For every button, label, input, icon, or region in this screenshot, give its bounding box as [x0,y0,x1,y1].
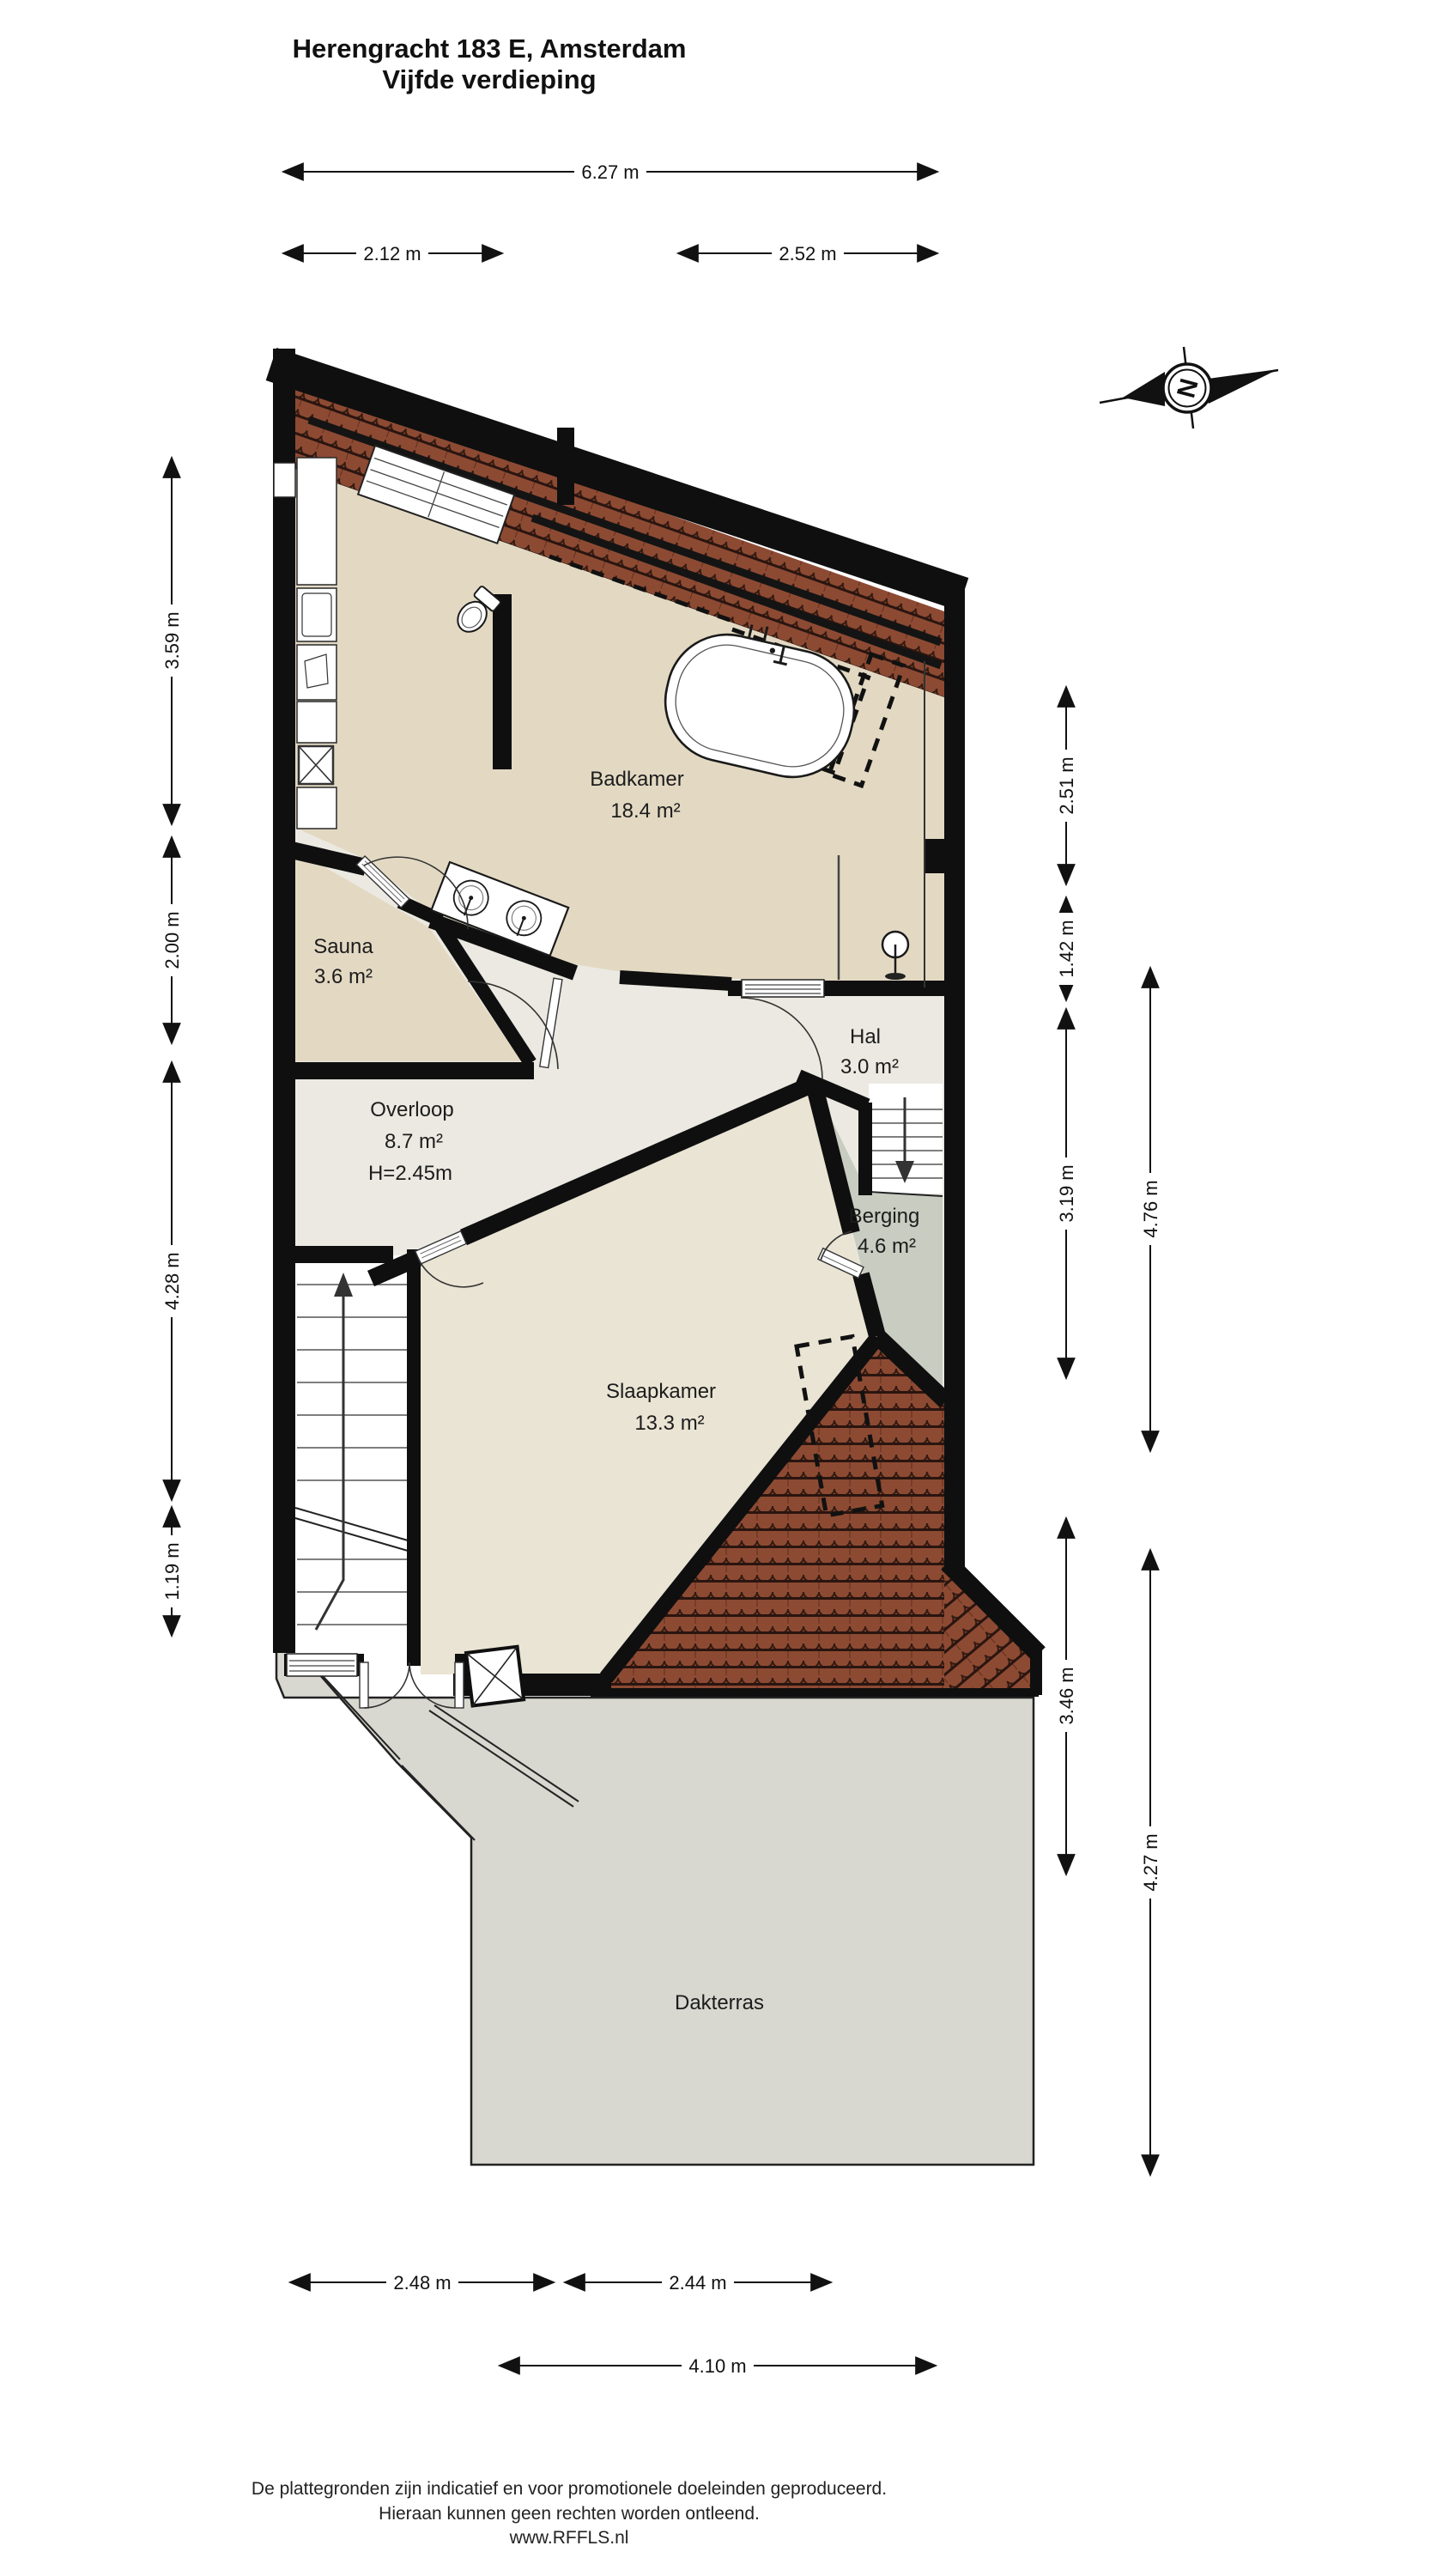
footer-line-2: Hieraan kunnen geen rechten worden ontle… [379,2504,760,2524]
page-subtitle: Vijfde verdieping [382,64,596,94]
label-overloop-area: 8.7 m² [385,1130,443,1153]
cabinet2 [297,702,336,743]
dakterras-area [276,1625,1034,2165]
dim-right-3: 3.19 m [1056,1164,1077,1222]
label-hal: Hal [850,1025,881,1048]
label-hal-area: 3.0 m² [840,1055,899,1078]
dim-top-total: 6.27 m [581,161,639,183]
dim-right-4: 3.46 m [1056,1667,1077,1724]
dim-right-2: 1.42 m [1056,920,1077,977]
dim-left-2: 2.00 m [161,911,183,969]
footer-line-1: De plattegronden zijn indicatief en voor… [252,2479,887,2499]
dim-right-outer-2: 4.27 m [1140,1833,1161,1891]
counter [297,458,336,585]
dim-bottom-left: 2.48 m [393,2272,451,2293]
label-dakterras: Dakterras [675,1991,764,2014]
skylight-x-window [466,1647,524,1706]
dim-left-4: 1.19 m [161,1542,183,1600]
dim-top-right: 2.52 m [779,243,836,264]
compass-icon: N [1100,347,1278,428]
floorplan-canvas: Herengracht 183 E, Amsterdam Vijfde verd… [0,0,1449,2576]
dim-right-1: 2.51 m [1056,756,1077,814]
dim-left-3: 4.28 m [161,1252,183,1309]
terrace-door-right-leaf [455,1662,464,1708]
dim-top-left: 2.12 m [363,243,421,264]
label-slaapkamer-area: 13.3 m² [634,1412,704,1435]
footer-line-3: www.RFFLS.nl [509,2528,629,2548]
staircase-up [295,1255,414,1656]
cabinet [297,645,336,700]
footer: De plattegronden zijn indicatief en voor… [252,2479,887,2548]
cabinet3 [297,787,336,829]
window-left-wall [274,463,295,497]
label-berging: Berging [849,1205,920,1228]
wall-badkamer-south [620,977,731,984]
wall-pier-right [925,839,948,873]
label-badkamer-area: 18.4 m² [610,799,680,823]
window-overloop-bottom [287,1654,357,1676]
dim-right-outer-1: 4.76 m [1140,1180,1161,1237]
label-sauna-area: 3.6 m² [314,965,373,988]
page-title: Herengracht 183 E, Amsterdam [293,33,687,64]
label-badkamer: Badkamer [590,768,683,791]
window-hal-frame [742,980,824,997]
washer [297,588,336,641]
floorplan-page: Herengracht 183 E, Amsterdam Vijfde verd… [0,0,1449,2576]
dim-bottom-right: 2.44 m [669,2272,726,2293]
label-berging-area: 4.6 m² [858,1235,916,1258]
label-slaapkamer: Slaapkamer [606,1380,716,1403]
dim-bottom-total: 4.10 m [688,2355,746,2377]
dim-left-1: 3.59 m [161,611,183,669]
label-overloop: Overloop [370,1098,453,1121]
label-sauna: Sauna [313,935,373,958]
terrace-door-left-leaf [360,1662,368,1708]
staircase-down [869,1084,943,1196]
label-overloop-height: H=2.45m [368,1162,452,1185]
